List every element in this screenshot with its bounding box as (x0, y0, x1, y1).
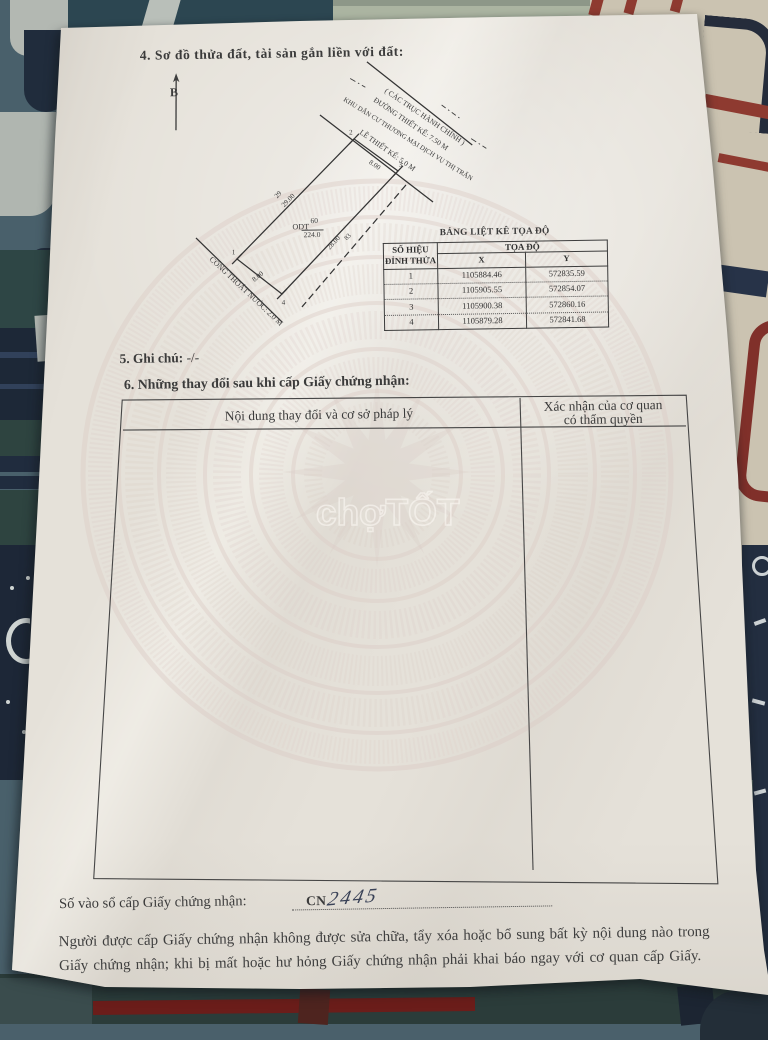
svg-text:28.00: 28.00 (325, 234, 342, 251)
svg-text:29: 29 (273, 189, 284, 200)
svg-text:Nội dung thay đổi và cơ sở phá: Nội dung thay đổi và cơ sở pháp lý (225, 406, 414, 424)
svg-text:LỀ THIẾT KẾ: 5.0 M: LỀ THIẾT KẾ: 5.0 M (358, 127, 418, 173)
svg-text:1: 1 (232, 248, 236, 256)
svg-text:CỐNG THOÁT NƯỚC: 2.0 M: CỐNG THOÁT NƯỚC: 2.0 M (208, 254, 286, 328)
svg-text:60: 60 (310, 216, 318, 225)
svg-text:224.0: 224.0 (304, 230, 321, 239)
svg-text:4: 4 (282, 299, 286, 307)
svg-text:2: 2 (349, 128, 353, 136)
svg-text:8.00: 8.00 (367, 158, 382, 172)
svg-text:B: B (170, 85, 178, 99)
svg-text:có thẩm quyền: có thẩm quyền (564, 411, 643, 427)
svg-text:83: 83 (343, 232, 353, 242)
svg-text:3: 3 (398, 161, 402, 169)
